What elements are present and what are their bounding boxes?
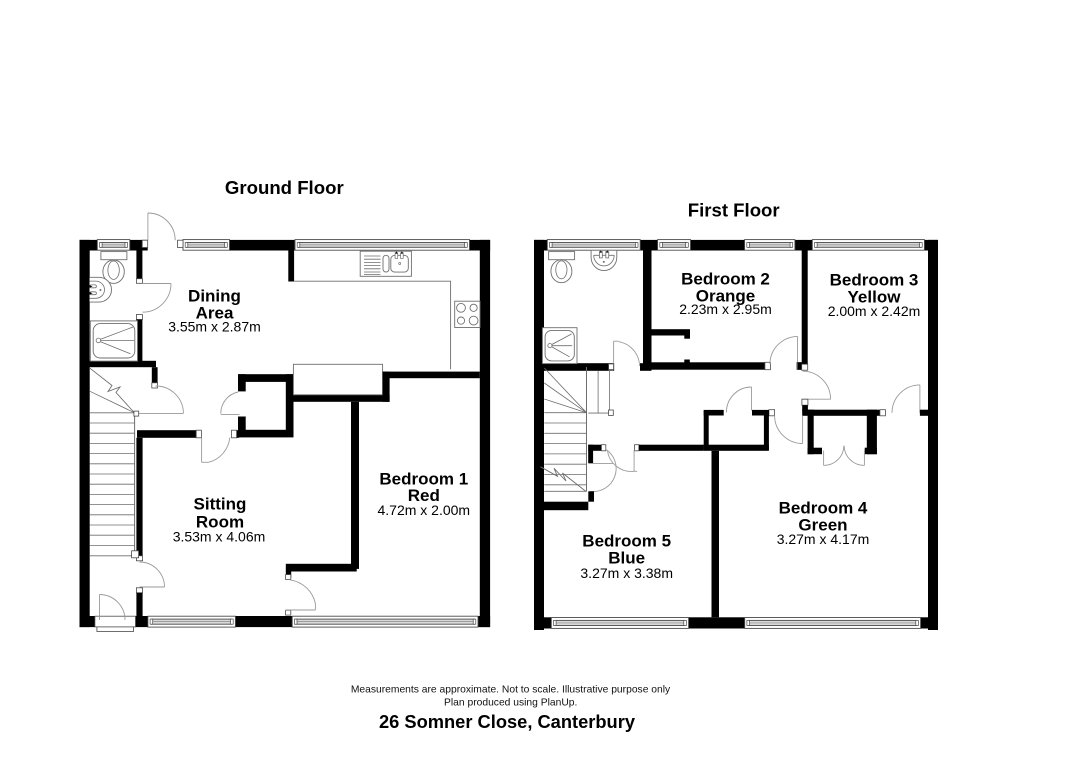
svg-text:Ground Floor: Ground Floor: [225, 177, 344, 198]
svg-text:First Floor: First Floor: [688, 200, 780, 221]
svg-text:2.23m x 2.95m: 2.23m x 2.95m: [679, 301, 772, 317]
svg-text:3.27m x 3.38m: 3.27m x 3.38m: [580, 565, 673, 581]
svg-text:Plan produced using PlanUp.: Plan produced using PlanUp.: [444, 698, 577, 709]
svg-text:26 Somner Close, Canterbury: 26 Somner Close, Canterbury: [379, 711, 636, 732]
svg-text:3.55m x 2.87m: 3.55m x 2.87m: [168, 318, 261, 334]
svg-text:Dining: Dining: [188, 286, 241, 305]
svg-text:4.72m x 2.00m: 4.72m x 2.00m: [377, 502, 470, 518]
svg-text:3.53m x 4.06m: 3.53m x 4.06m: [173, 528, 266, 544]
svg-text:Sitting: Sitting: [194, 495, 247, 514]
svg-text:3.27m x 4.17m: 3.27m x 4.17m: [777, 531, 870, 547]
svg-text:2.00m x 2.42m: 2.00m x 2.42m: [828, 303, 921, 319]
svg-text:Measurements are approximate.: Measurements are approximate. Not to sca…: [351, 685, 671, 696]
